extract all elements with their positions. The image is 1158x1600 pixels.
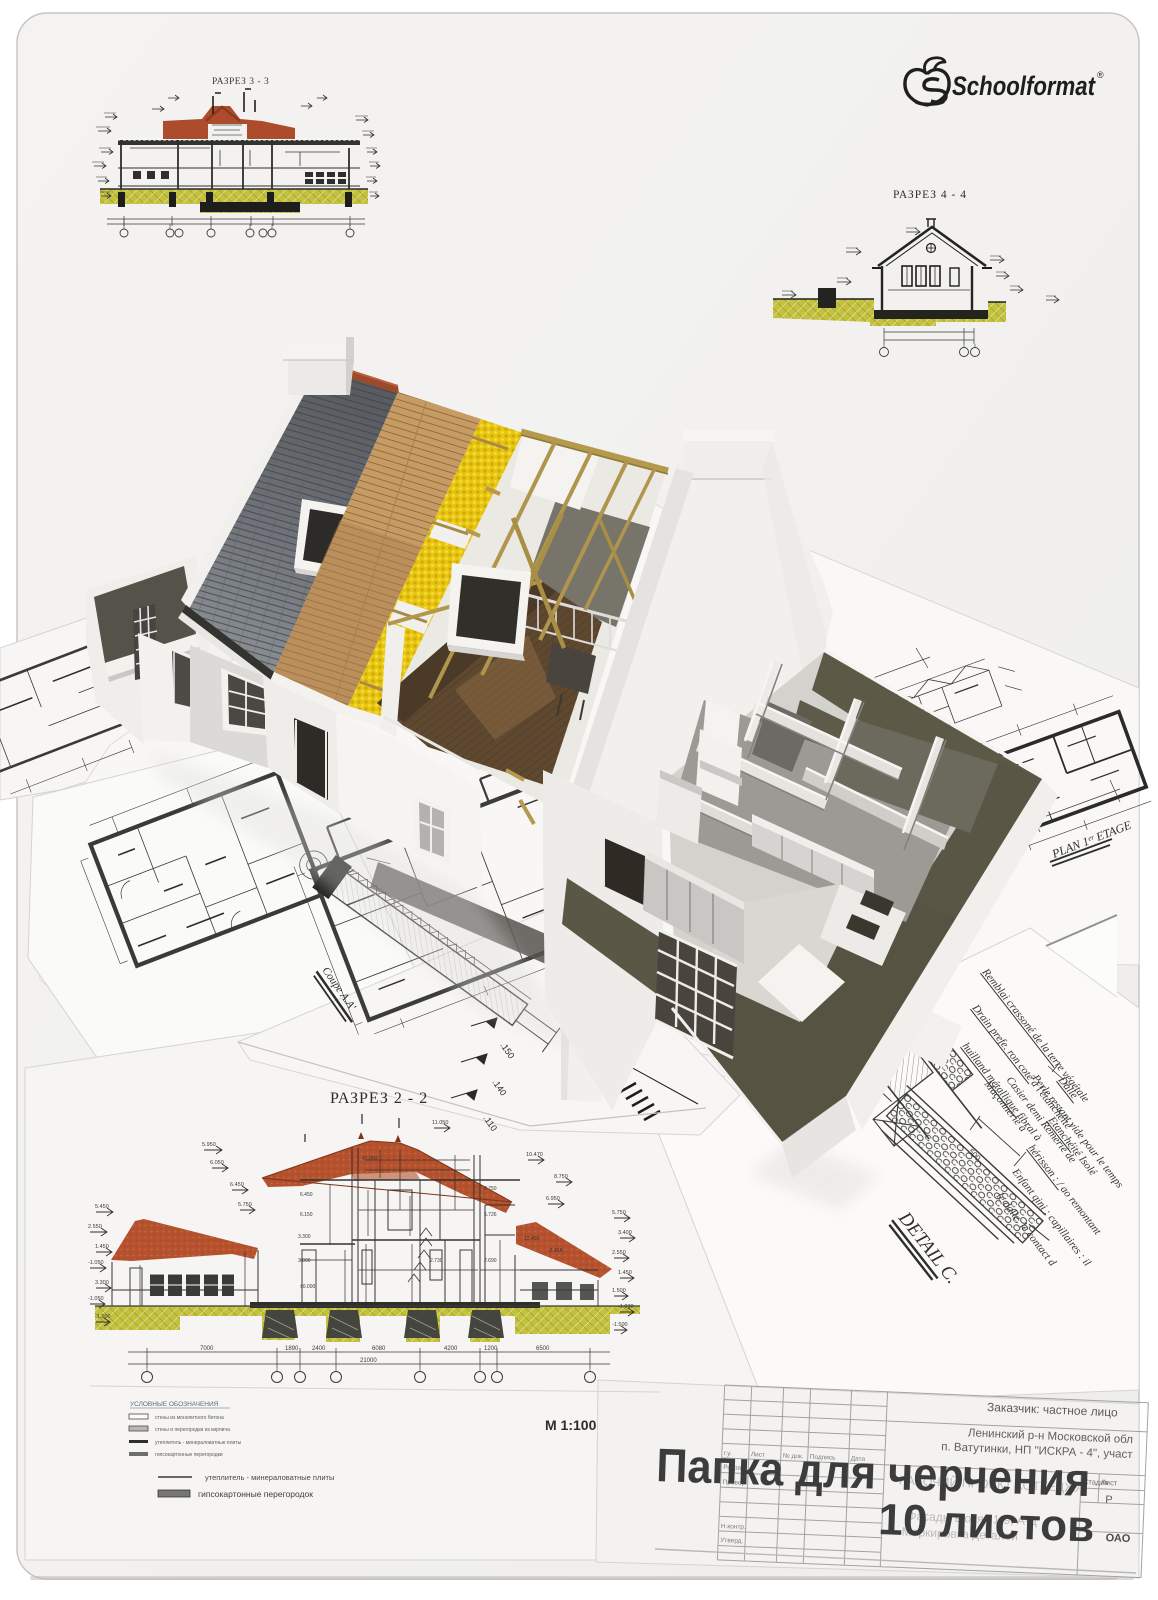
svg-text:ОАО: ОАО bbox=[1105, 1532, 1131, 1545]
svg-text:утеплитель - минераловатные пл: утеплитель - минераловатные плиты bbox=[155, 1440, 242, 1446]
svg-text:21000: 21000 bbox=[360, 1358, 377, 1364]
svg-text:®: ® bbox=[1097, 70, 1104, 80]
svg-text:гипсокартонные перегородки: гипсокартонные перегородки bbox=[155, 1452, 223, 1458]
svg-text:гипсокартонные перегородок: гипсокартонные перегородок bbox=[198, 1489, 313, 1499]
svg-text:±0.000: ±0.000 bbox=[300, 1284, 315, 1290]
svg-text:М 1:100: М 1:100 bbox=[545, 1417, 597, 1433]
svg-text:6500: 6500 bbox=[536, 1346, 550, 1352]
svg-text:-2.45A: -2.45A bbox=[548, 1248, 563, 1254]
svg-text:2.550: 2.550 bbox=[612, 1250, 626, 1256]
svg-text:8.750: 8.750 bbox=[554, 1174, 568, 1180]
svg-text:3.300: 3.300 bbox=[298, 1234, 311, 1240]
svg-text:Schoolformat: Schoolformat bbox=[952, 71, 1096, 101]
svg-text:1200: 1200 bbox=[484, 1346, 498, 1352]
svg-text:2.690: 2.690 bbox=[484, 1258, 497, 1264]
svg-text:6.450: 6.450 bbox=[230, 1182, 244, 1188]
svg-text:5.950: 5.950 bbox=[202, 1142, 216, 1148]
svg-text:-1.050: -1.050 bbox=[88, 1296, 104, 1302]
svg-text:-1.030: -1.030 bbox=[618, 1304, 634, 1310]
svg-text:Утверд.: Утверд. bbox=[720, 1537, 744, 1545]
svg-text:5.726: 5.726 bbox=[484, 1212, 497, 1218]
svg-text:-1.500: -1.500 bbox=[612, 1322, 628, 1328]
svg-text:стены и перегородки из кирпича: стены и перегородки из кирпича bbox=[155, 1427, 230, 1433]
svg-text:3.400: 3.400 bbox=[618, 1230, 632, 1236]
svg-text:1.500: 1.500 bbox=[612, 1288, 626, 1294]
svg-text:2400: 2400 bbox=[312, 1346, 326, 1352]
svg-text:5.450: 5.450 bbox=[95, 1204, 109, 1210]
svg-text:10 листов: 10 листов bbox=[878, 1495, 1096, 1552]
svg-text:12.450: 12.450 bbox=[524, 1236, 540, 1242]
svg-text:5.750: 5.750 bbox=[612, 1210, 626, 1216]
svg-text:РАЗРЕЗ 2 - 2: РАЗРЕЗ 2 - 2 bbox=[330, 1090, 428, 1107]
svg-text:РАЗРЕЗ 3 - 3: РАЗРЕЗ 3 - 3 bbox=[212, 77, 269, 87]
svg-text:3.000: 3.000 bbox=[298, 1258, 311, 1264]
svg-text:Лист: Лист bbox=[1101, 1478, 1118, 1488]
svg-text:6.950: 6.950 bbox=[546, 1196, 560, 1202]
svg-text:3.300: 3.300 bbox=[95, 1280, 109, 1286]
svg-text:-1.050: -1.050 bbox=[88, 1260, 104, 1266]
svg-text:Н.контр.: Н.контр. bbox=[721, 1523, 746, 1531]
svg-text:4200: 4200 bbox=[444, 1346, 458, 1352]
svg-text:утеплитель - минераловатные: утеплитель - минераловатные плиты bbox=[205, 1473, 334, 1482]
svg-text:7000: 7000 bbox=[200, 1346, 214, 1352]
svg-text:6080: 6080 bbox=[372, 1346, 386, 1352]
svg-text:10.470: 10.470 bbox=[526, 1152, 543, 1158]
svg-text:2.550: 2.550 bbox=[88, 1224, 102, 1230]
svg-text:11.050: 11.050 bbox=[432, 1120, 448, 1126]
svg-text:6.050: 6.050 bbox=[210, 1160, 224, 1166]
svg-text:1890: 1890 bbox=[285, 1346, 299, 1352]
svg-text:1.450: 1.450 bbox=[618, 1270, 632, 1276]
svg-text:-1.500: -1.500 bbox=[95, 1314, 111, 1320]
svg-text:6.150: 6.150 bbox=[300, 1212, 313, 1218]
svg-text:Р: Р bbox=[1105, 1494, 1113, 1506]
svg-text:стены из монолитного бетона: стены из монолитного бетона bbox=[155, 1415, 224, 1421]
svg-text:8.750: 8.750 bbox=[484, 1186, 497, 1192]
svg-text:УСЛОВНЫЕ ОБОЗНАЧЕНИЯ: УСЛОВНЫЕ ОБОЗНАЧЕНИЯ bbox=[130, 1401, 219, 1408]
svg-text:РАЗРЕЗ 4 - 4: РАЗРЕЗ 4 - 4 bbox=[893, 189, 967, 201]
svg-text:2.730: 2.730 bbox=[430, 1258, 443, 1264]
svg-text:5.750: 5.750 bbox=[238, 1202, 252, 1208]
svg-text:1.450: 1.450 bbox=[95, 1244, 109, 1250]
svg-text:41.050: 41.050 bbox=[362, 1156, 378, 1162]
svg-text:6.450: 6.450 bbox=[300, 1192, 313, 1198]
